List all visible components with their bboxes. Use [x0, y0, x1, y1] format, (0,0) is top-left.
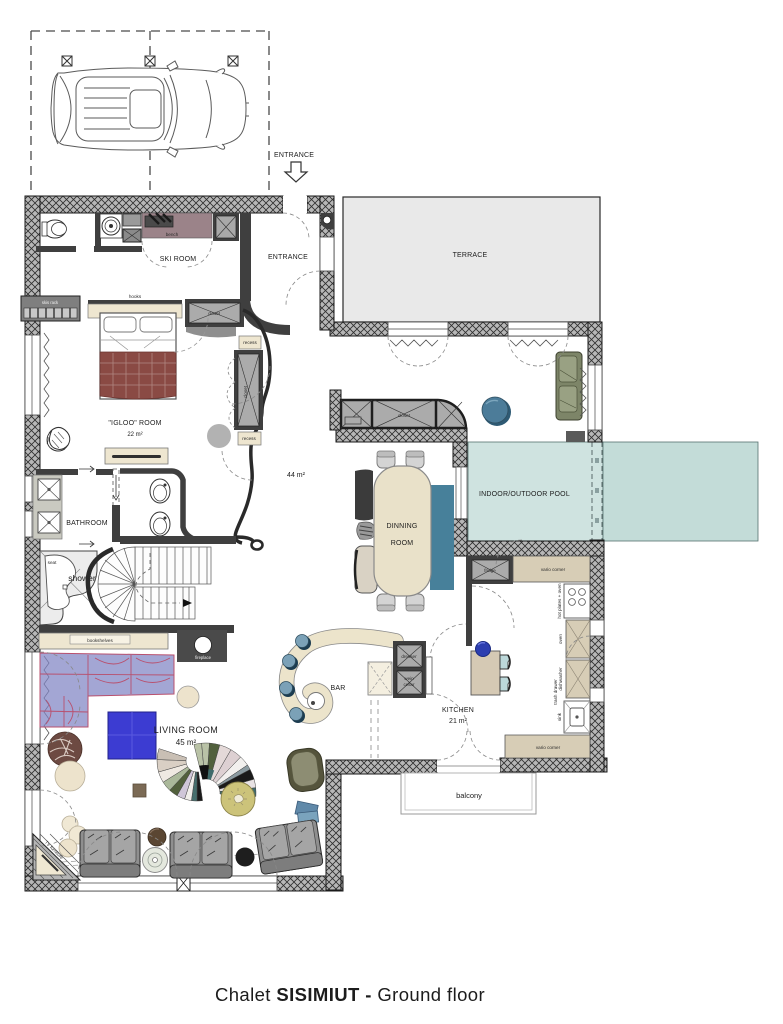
svg-text:dishwasher: dishwasher — [558, 667, 563, 691]
svg-text:SKI ROOM: SKI ROOM — [160, 256, 197, 263]
svg-text:shower: shower — [68, 573, 96, 583]
svg-text:44 m²: 44 m² — [287, 472, 306, 479]
svg-text:balcony: balcony — [456, 791, 482, 800]
svg-text:ENTRANCE: ENTRANCE — [268, 254, 308, 261]
svg-text:trash drawer: trash drawer — [553, 679, 558, 705]
svg-text:BAR: BAR — [331, 685, 346, 692]
svg-text:ROOM: ROOM — [391, 540, 414, 547]
svg-text:KITCHEN: KITCHEN — [442, 707, 474, 714]
svg-text:hooks: hooks — [129, 294, 142, 299]
svg-text:fireplace: fireplace — [195, 655, 211, 660]
svg-text:wein: wein — [404, 676, 414, 681]
svg-text:closet: closet — [208, 311, 221, 316]
svg-text:LIVING ROOM: LIVING ROOM — [154, 725, 218, 735]
svg-text:45 m²: 45 m² — [176, 738, 197, 747]
svg-text:hot plates + oven: hot plates + oven — [557, 583, 562, 619]
svg-text:vario corner: vario corner — [536, 745, 561, 750]
svg-text:bench: bench — [166, 232, 179, 237]
svg-text:skis rack: skis rack — [42, 300, 59, 305]
svg-text:"IGLOO" ROOM: "IGLOO" ROOM — [108, 420, 161, 427]
svg-text:TERRACE: TERRACE — [453, 252, 488, 259]
svg-text:21 m²: 21 m² — [449, 718, 468, 725]
svg-text:DINNING: DINNING — [387, 523, 418, 530]
svg-text:closet: closet — [243, 385, 248, 398]
svg-text:oven: oven — [558, 634, 563, 644]
svg-text:BATHROOM: BATHROOM — [66, 520, 108, 527]
svg-text:ENTRANCE: ENTRANCE — [274, 152, 314, 159]
svg-text:recess: recess — [242, 436, 256, 441]
svg-text:cellar: cellar — [404, 682, 415, 687]
svg-text:fridge: fridge — [484, 568, 496, 573]
svg-text:bookshelves: bookshelves — [87, 638, 113, 643]
svg-text:sink: sink — [557, 712, 562, 721]
svg-text:dresser: dresser — [401, 654, 417, 659]
svg-text:Chalet SISIMIUT - Ground flo: Chalet SISIMIUT - Ground floor — [215, 984, 485, 1005]
svg-text:recess: recess — [243, 340, 257, 345]
svg-text:22 m²: 22 m² — [127, 432, 142, 438]
svg-text:INDOOR/OUTDOOR POOL: INDOOR/OUTDOOR POOL — [479, 491, 570, 498]
svg-text:closet: closet — [398, 413, 411, 418]
svg-text:seat: seat — [48, 560, 57, 565]
svg-text:vario corner: vario corner — [541, 567, 566, 572]
